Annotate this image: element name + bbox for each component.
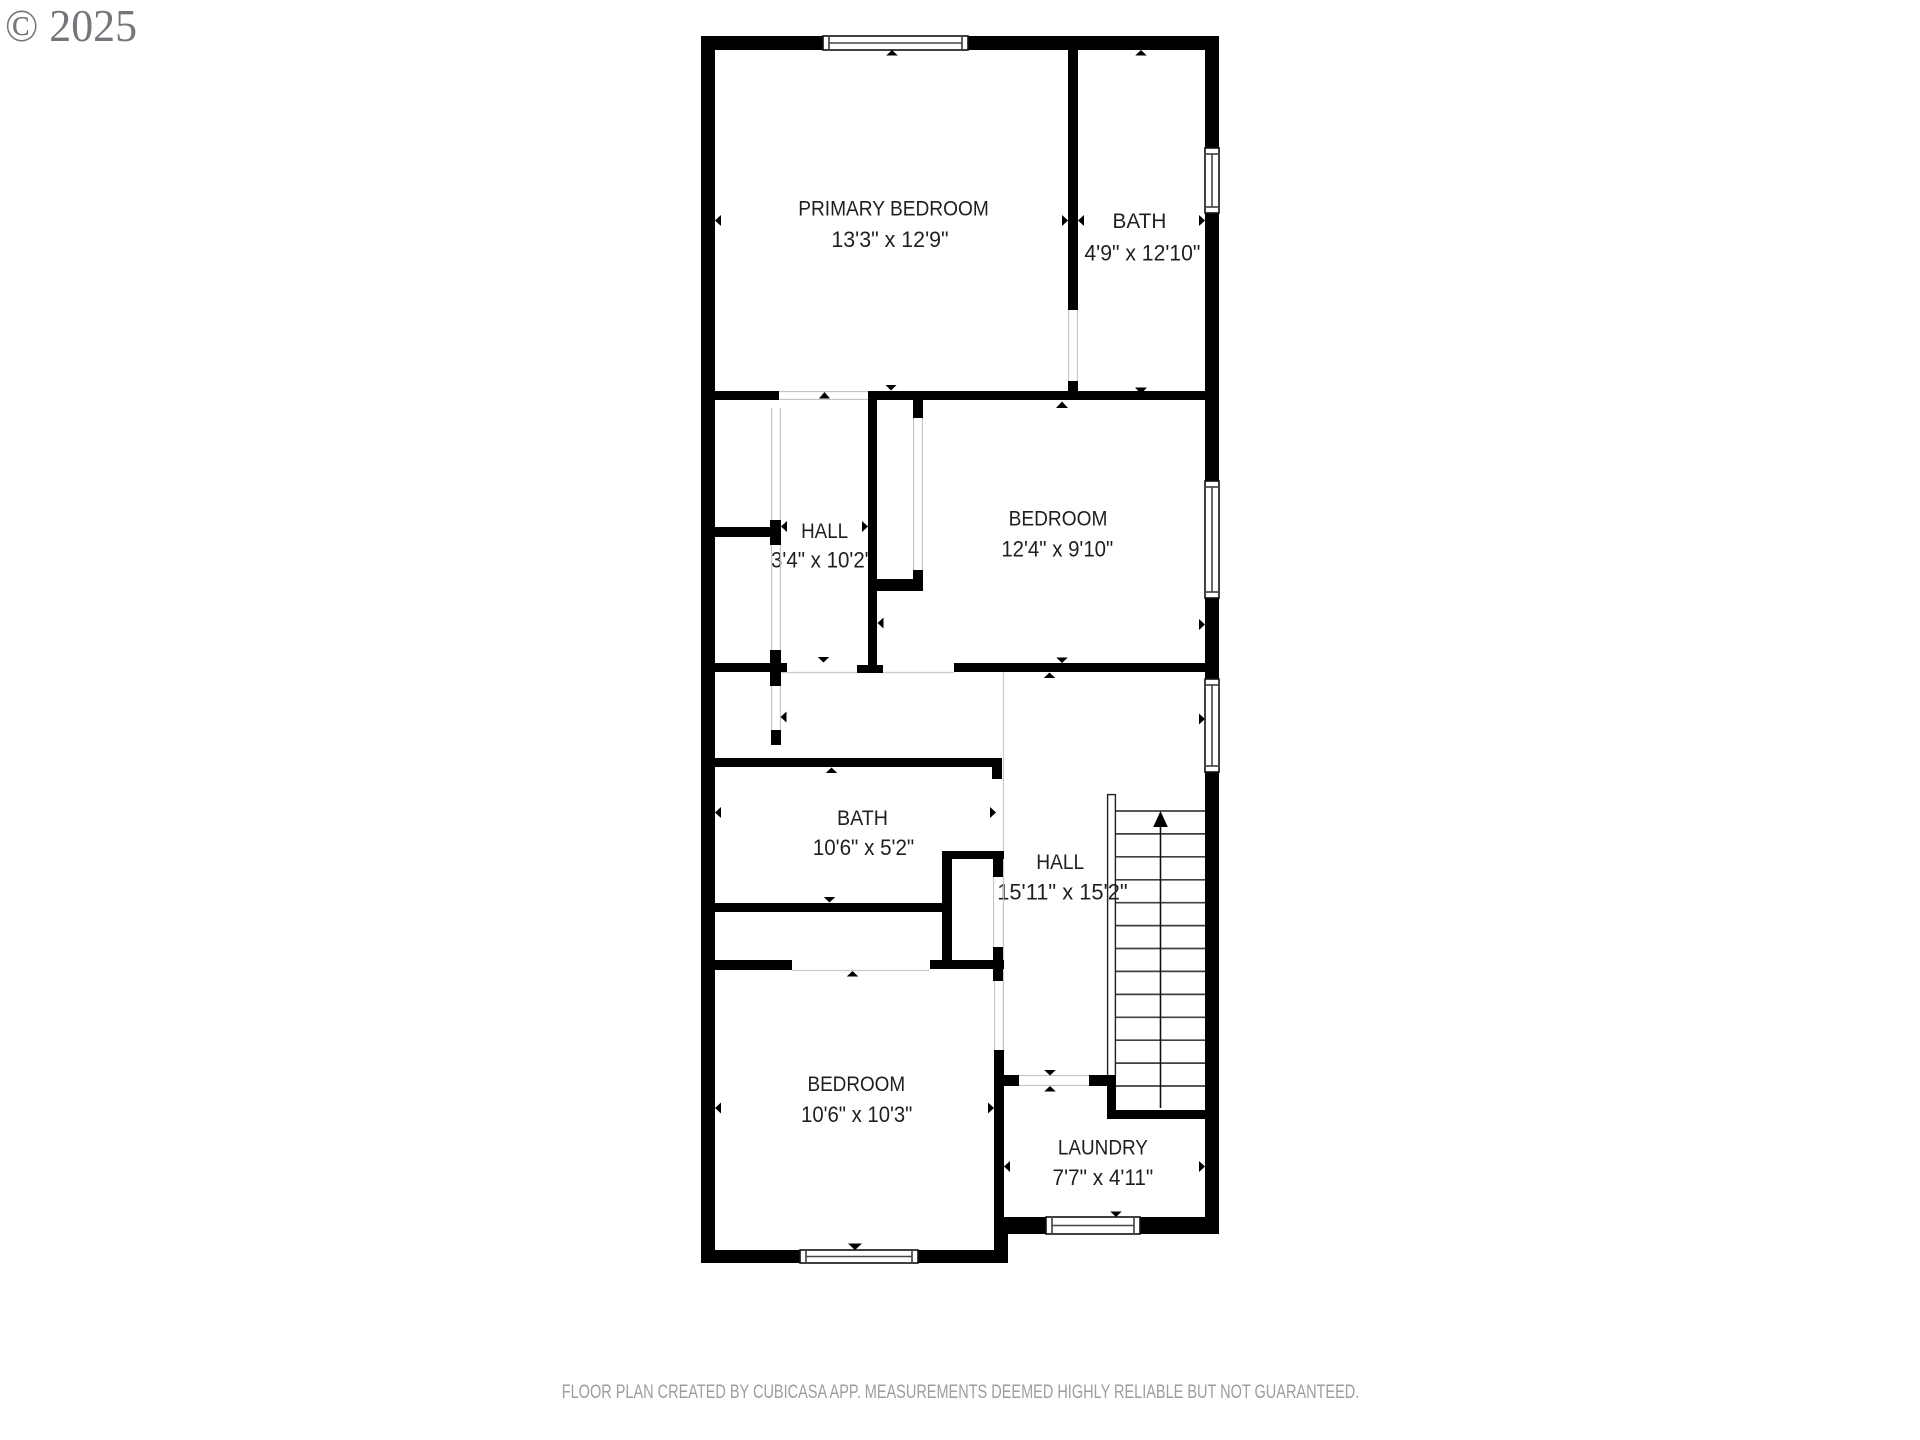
svg-text:© 2025: © 2025 [5, 0, 137, 51]
svg-text:10'6" x 10'3": 10'6" x 10'3" [801, 1103, 912, 1127]
svg-text:10'6" x 5'2": 10'6" x 5'2" [813, 835, 914, 860]
svg-text:PRIMARY BEDROOM: PRIMARY BEDROOM [798, 198, 989, 221]
svg-text:3'4" x 10'2": 3'4" x 10'2" [771, 548, 872, 573]
svg-text:BATH: BATH [837, 806, 888, 830]
svg-text:HALL: HALL [1036, 851, 1084, 874]
svg-text:15'11" x 15'2": 15'11" x 15'2" [997, 879, 1127, 904]
svg-text:BATH: BATH [1112, 210, 1166, 233]
svg-text:HALL: HALL [801, 520, 848, 543]
svg-text:13'3" x 12'9": 13'3" x 12'9" [831, 227, 948, 252]
svg-text:FLOOR PLAN CREATED BY CUBICASA: FLOOR PLAN CREATED BY CUBICASA APP. MEAS… [562, 1381, 1360, 1402]
svg-text:4'9" x 12'10": 4'9" x 12'10" [1084, 240, 1200, 265]
svg-text:7'7" x 4'11": 7'7" x 4'11" [1053, 1165, 1154, 1190]
svg-text:LAUNDRY: LAUNDRY [1058, 1136, 1148, 1159]
svg-text:BEDROOM: BEDROOM [1009, 508, 1108, 531]
svg-text:BEDROOM: BEDROOM [807, 1073, 905, 1096]
svg-text:12'4" x 9'10": 12'4" x 9'10" [1001, 538, 1113, 562]
